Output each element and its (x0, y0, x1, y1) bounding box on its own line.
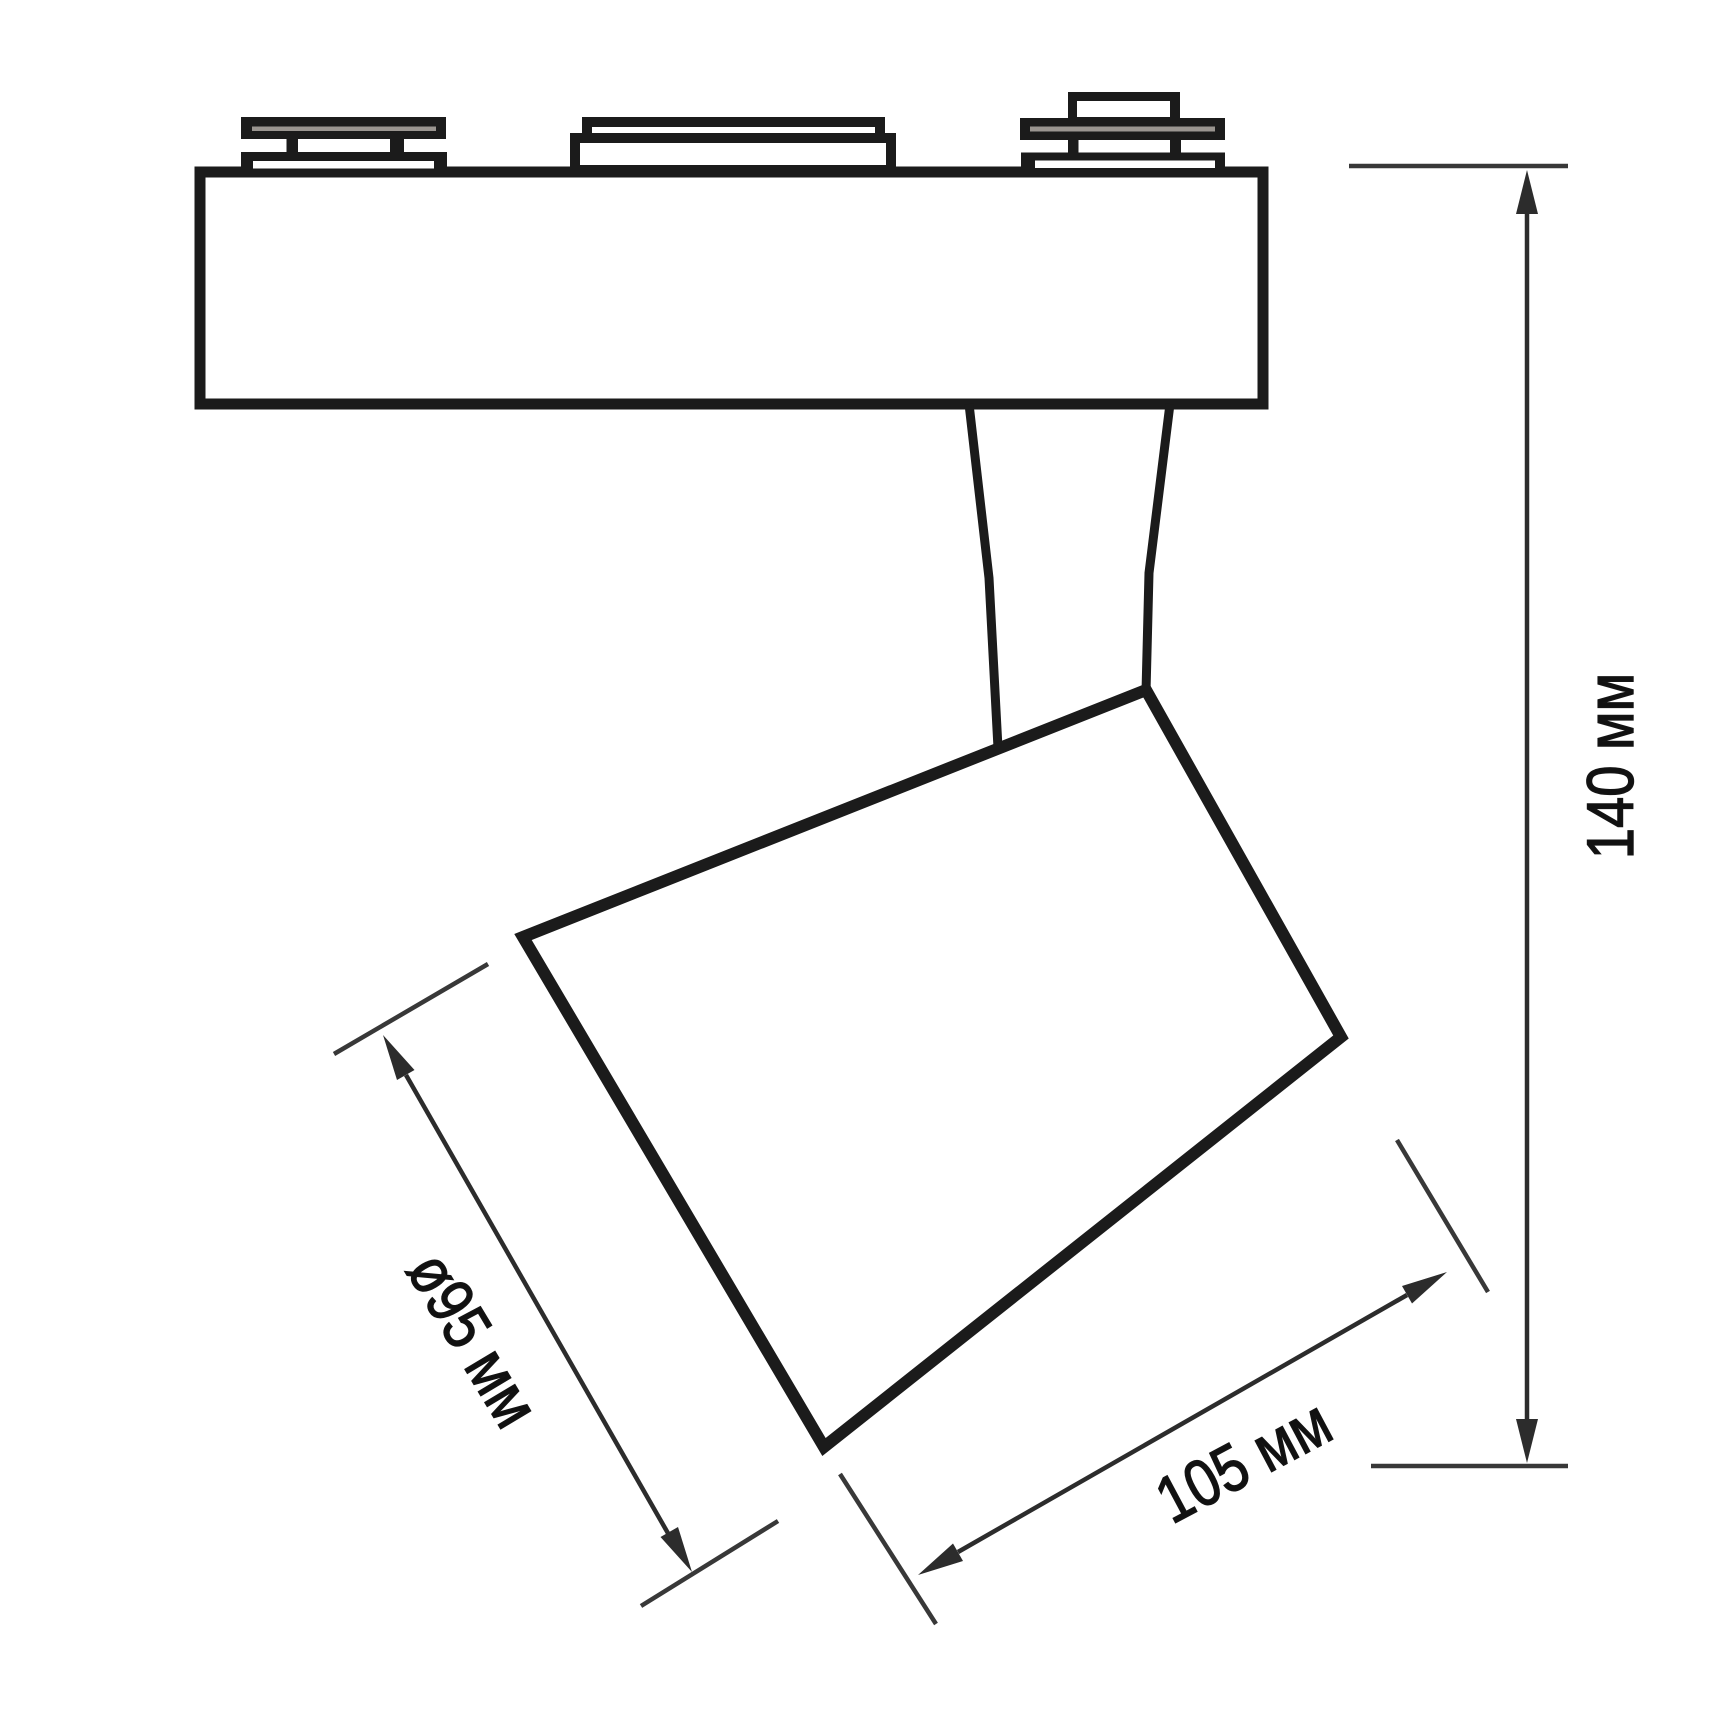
svg-text:140 мм: 140 мм (1574, 673, 1647, 859)
